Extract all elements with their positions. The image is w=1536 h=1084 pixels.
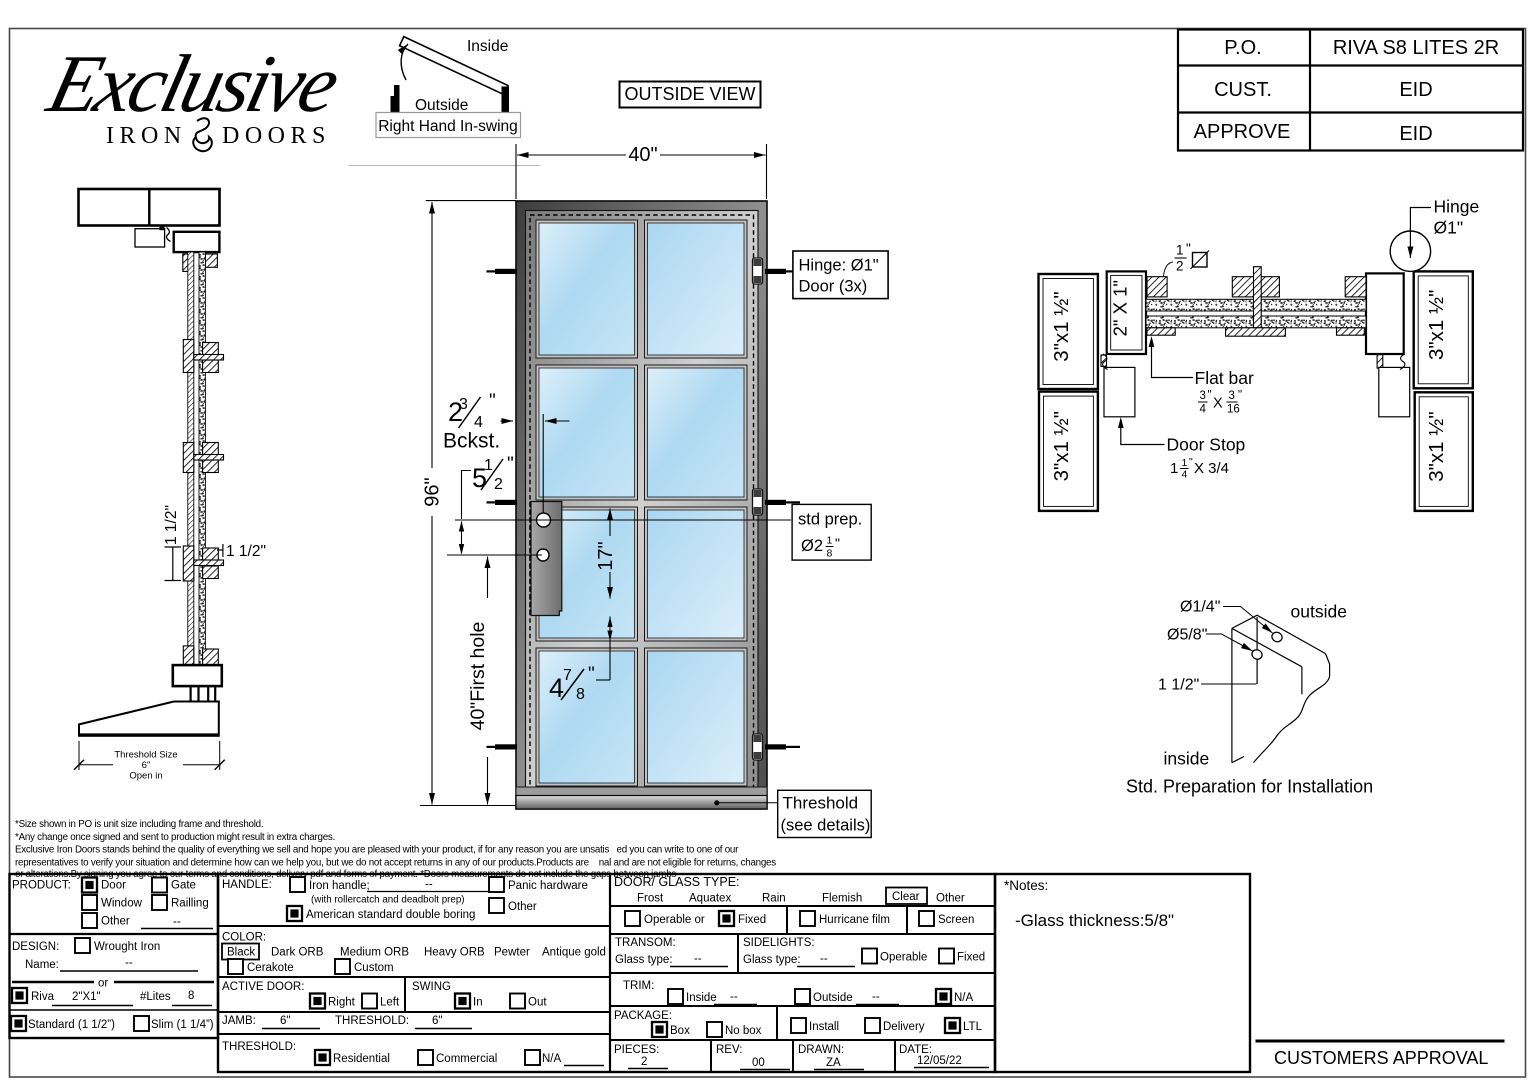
svg-text:6": 6" — [432, 1015, 442, 1027]
svg-text:representatives to verify your: representatives to verify your situation… — [15, 857, 776, 868]
svg-text:": " — [507, 454, 514, 475]
svg-text:(with rollercatch and deadbolt: (with rollercatch and deadbolt prep) — [311, 895, 465, 906]
svg-text:3"x1 ½": 3"x1 ½" — [1425, 290, 1448, 360]
svg-text:HANDLE:: HANDLE: — [222, 879, 272, 891]
svg-text:X: X — [1213, 396, 1223, 412]
svg-text:Standard (1 1/2”): Standard (1 1/2”) — [28, 1019, 115, 1031]
svg-text:Exclusive Iron Doors stands be: Exclusive Iron Doors stands behind the q… — [15, 845, 739, 856]
svg-text:1 1/2": 1 1/2" — [163, 505, 180, 545]
svg-text:3"x1 ½": 3"x1 ½" — [1050, 411, 1073, 481]
svg-text:#Lites: #Lites — [140, 991, 171, 1003]
svg-text:Hinge: Ø1": Hinge: Ø1" — [799, 257, 879, 275]
svg-text:Other: Other — [936, 893, 965, 905]
svg-text:": " — [1208, 390, 1212, 402]
svg-text:No box: No box — [725, 1025, 762, 1037]
svg-text:*Notes:: *Notes: — [1004, 878, 1048, 893]
svg-text:Ø1/4": Ø1/4" — [1180, 599, 1220, 616]
svg-text:2: 2 — [641, 1056, 647, 1068]
svg-text:IRON: IRON — [106, 123, 187, 149]
svg-text:DOOR/ GLASS TYPE:: DOOR/ GLASS TYPE: — [614, 875, 740, 889]
svg-text:(see details): (see details) — [781, 817, 871, 835]
svg-text:Flat bar: Flat bar — [1195, 368, 1254, 388]
svg-text:17": 17" — [595, 541, 617, 570]
svg-text:Panic hardware: Panic hardware — [508, 880, 588, 892]
svg-text:": " — [1189, 456, 1193, 468]
svg-text:PRODUCT:: PRODUCT: — [12, 880, 71, 892]
svg-text:40": 40" — [628, 144, 657, 166]
svg-text:Heavy ORB: Heavy ORB — [424, 947, 485, 959]
svg-text:2: 2 — [1176, 259, 1184, 274]
svg-text:4: 4 — [1200, 404, 1207, 416]
svg-text:Glass type:: Glass type: — [743, 954, 801, 966]
svg-text:Antique gold: Antique gold — [542, 947, 606, 959]
svg-text:EID: EID — [1399, 79, 1432, 101]
svg-text:40"First hole: 40"First hole — [467, 622, 489, 731]
svg-text:APPROVE: APPROVE — [1194, 121, 1291, 143]
svg-text:N/A: N/A — [542, 1053, 562, 1065]
svg-text:3: 3 — [459, 396, 468, 413]
svg-text:DRAWN:: DRAWN: — [798, 1044, 844, 1056]
svg-text:outside: outside — [1291, 602, 1347, 622]
svg-text:Install: Install — [809, 1021, 839, 1033]
svg-text:P.O.: P.O. — [1224, 37, 1261, 59]
svg-text:Operable or: Operable or — [644, 914, 705, 926]
svg-text:Riva: Riva — [31, 991, 55, 1003]
svg-text:6": 6" — [280, 1015, 290, 1027]
svg-text:-Glass thickness:5/8": -Glass thickness:5/8" — [1015, 911, 1174, 930]
svg-text:THRESHOLD:: THRESHOLD: — [222, 1041, 296, 1053]
svg-text:American standard double borin: American standard double boring — [306, 909, 475, 921]
svg-text:Fixed: Fixed — [738, 914, 766, 926]
svg-text:Out: Out — [528, 997, 547, 1009]
svg-text:--: -- — [872, 991, 880, 1003]
svg-text:X 3/4: X 3/4 — [1194, 460, 1229, 477]
svg-text:PACKAGE:: PACKAGE: — [614, 1010, 672, 1022]
svg-text:Residential: Residential — [333, 1053, 390, 1065]
svg-text:or: or — [98, 978, 108, 990]
svg-text:Hinge: Hinge — [1434, 197, 1480, 217]
svg-text:Other: Other — [101, 916, 130, 928]
svg-text:ZA: ZA — [826, 1057, 841, 1069]
svg-text:--: -- — [425, 879, 433, 891]
svg-text:JAMB:: JAMB: — [222, 1015, 256, 1027]
svg-text:1 1/2": 1 1/2" — [226, 543, 266, 560]
svg-text:16: 16 — [1227, 404, 1240, 416]
svg-text:ACTIVE DOOR:: ACTIVE DOOR: — [222, 981, 304, 993]
svg-text:Bckst.: Bckst. — [443, 430, 500, 453]
svg-text:Aquatex: Aquatex — [689, 893, 731, 905]
svg-text:EID: EID — [1399, 123, 1432, 145]
svg-text:Commercial: Commercial — [436, 1053, 497, 1065]
svg-text:Door Stop: Door Stop — [1167, 435, 1246, 455]
svg-text:Outside: Outside — [813, 992, 853, 1004]
svg-text:4: 4 — [474, 414, 483, 431]
svg-text:1: 1 — [1170, 460, 1178, 477]
svg-text:--: -- — [730, 991, 738, 1003]
svg-text:": " — [835, 535, 840, 551]
svg-text:--: -- — [125, 957, 133, 969]
svg-text:Cerakote: Cerakote — [247, 962, 294, 974]
svg-text:Black: Black — [227, 947, 255, 959]
svg-text:std prep.: std prep. — [798, 511, 862, 529]
svg-text:Right: Right — [328, 997, 356, 1009]
svg-text:TRIM:: TRIM: — [623, 980, 654, 992]
svg-text:3: 3 — [1229, 390, 1235, 402]
svg-text:": " — [588, 664, 595, 685]
svg-text:Ø1": Ø1" — [1434, 218, 1464, 238]
svg-text:*Size shown in PO is unit size: *Size shown in PO is unit size including… — [15, 819, 263, 830]
svg-text:7: 7 — [563, 667, 572, 684]
svg-text:1: 1 — [1176, 243, 1184, 258]
svg-text:Door: Door — [101, 880, 126, 892]
svg-text:OUTSIDE VIEW: OUTSIDE VIEW — [624, 84, 755, 104]
svg-text:8: 8 — [576, 686, 585, 703]
svg-text:Box: Box — [670, 1025, 690, 1037]
svg-text:6": 6" — [142, 760, 151, 771]
svg-text:Right Hand In-swing: Right Hand In-swing — [378, 118, 518, 135]
svg-text:Hurricane film: Hurricane film — [819, 914, 890, 926]
svg-text:Left: Left — [380, 997, 400, 1009]
svg-text:": " — [489, 391, 496, 412]
svg-text:inside: inside — [1164, 749, 1210, 769]
svg-text:RIVA S8 LITES 2R: RIVA S8 LITES 2R — [1333, 37, 1499, 59]
svg-text:3: 3 — [1200, 390, 1206, 402]
svg-text:--: -- — [820, 953, 828, 965]
svg-text:DOORS: DOORS — [222, 123, 331, 149]
svg-text:Ø5/8": Ø5/8" — [1167, 627, 1207, 644]
svg-text:Open in: Open in — [129, 771, 162, 782]
svg-text:Screen: Screen — [938, 914, 974, 926]
svg-text:Iron handle;: Iron handle; — [309, 880, 370, 892]
svg-text:Dark ORB: Dark ORB — [271, 947, 324, 959]
svg-text:LTL: LTL — [963, 1021, 983, 1033]
svg-text:--: -- — [173, 916, 181, 928]
svg-text:CUSTOMERS APPROVAL: CUSTOMERS APPROVAL — [1274, 1048, 1488, 1068]
svg-text:Ø2: Ø2 — [801, 537, 823, 555]
svg-text:3"x1 ½": 3"x1 ½" — [1050, 291, 1073, 361]
svg-text:--: -- — [694, 953, 702, 965]
svg-text:4: 4 — [1182, 469, 1188, 481]
svg-text:00: 00 — [752, 1057, 765, 1069]
svg-text:Flemish: Flemish — [822, 893, 862, 905]
svg-text:PIECES:: PIECES: — [614, 1044, 659, 1056]
svg-text:12/05/22: 12/05/22 — [917, 1055, 962, 1067]
svg-text:DESIGN:: DESIGN: — [12, 941, 59, 953]
svg-text:Glass type:: Glass type: — [615, 954, 673, 966]
svg-text:Pewter: Pewter — [494, 947, 530, 959]
svg-text:2"X1": 2"X1" — [72, 991, 101, 1003]
svg-text:Railling: Railling — [171, 898, 209, 910]
svg-text:Door (3x): Door (3x) — [799, 278, 868, 296]
svg-text:Custom: Custom — [354, 962, 394, 974]
svg-text:REV:: REV: — [716, 1044, 742, 1056]
svg-text:Wrought Iron: Wrought Iron — [94, 941, 160, 953]
svg-text:TRANSOM:: TRANSOM: — [615, 937, 676, 949]
svg-text:Delivery: Delivery — [883, 1021, 925, 1033]
svg-text:*Any change once signed and se: *Any change once signed and sent to prod… — [15, 832, 335, 843]
svg-text:Name:: Name: — [25, 959, 59, 971]
svg-text:Medium ORB: Medium ORB — [340, 947, 409, 959]
svg-text:1: 1 — [827, 535, 833, 547]
svg-text:Threshold Size: Threshold Size — [114, 750, 177, 761]
svg-text:Inside: Inside — [686, 992, 717, 1004]
svg-text:Other: Other — [508, 901, 537, 913]
svg-text:Frost: Frost — [637, 893, 664, 905]
svg-text:Threshold: Threshold — [783, 794, 859, 813]
svg-text:Inside: Inside — [467, 38, 508, 55]
svg-text:8: 8 — [827, 548, 833, 560]
svg-text:Clear: Clear — [892, 891, 920, 903]
svg-text:Rain: Rain — [762, 893, 786, 905]
svg-text:1: 1 — [484, 457, 493, 474]
svg-text:Exclusive: Exclusive — [39, 39, 348, 130]
svg-text:Gate: Gate — [171, 880, 196, 892]
svg-text:Fixed: Fixed — [957, 952, 985, 964]
svg-text:THRESHOLD:: THRESHOLD: — [335, 1015, 409, 1027]
svg-text:": " — [1238, 390, 1242, 402]
svg-text:2: 2 — [494, 476, 503, 493]
svg-text:N/A: N/A — [954, 992, 974, 1004]
svg-text:1 1/2": 1 1/2" — [1158, 677, 1199, 694]
svg-text:8: 8 — [188, 990, 194, 1002]
svg-text:": " — [1186, 241, 1191, 256]
svg-text:In: In — [473, 997, 483, 1009]
svg-text:Std. Preparation for Installat: Std. Preparation for Installation — [1126, 777, 1373, 797]
svg-text:1: 1 — [1182, 457, 1188, 469]
svg-text:Operable: Operable — [880, 952, 927, 964]
svg-text:COLOR:: COLOR: — [222, 932, 266, 944]
svg-text:CUST.: CUST. — [1214, 79, 1272, 101]
svg-text:Outside: Outside — [415, 97, 468, 114]
svg-text:2" X 1": 2" X 1" — [1110, 280, 1131, 336]
svg-text:3"x1 ½": 3"x1 ½" — [1425, 411, 1448, 481]
svg-text:Slim (1 1/4”): Slim (1 1/4”) — [151, 1019, 214, 1031]
svg-text:SWING: SWING — [412, 981, 451, 993]
svg-text:SIDELIGHTS:: SIDELIGHTS: — [743, 937, 815, 949]
svg-text:Window: Window — [101, 898, 143, 910]
svg-text:96": 96" — [422, 477, 444, 506]
